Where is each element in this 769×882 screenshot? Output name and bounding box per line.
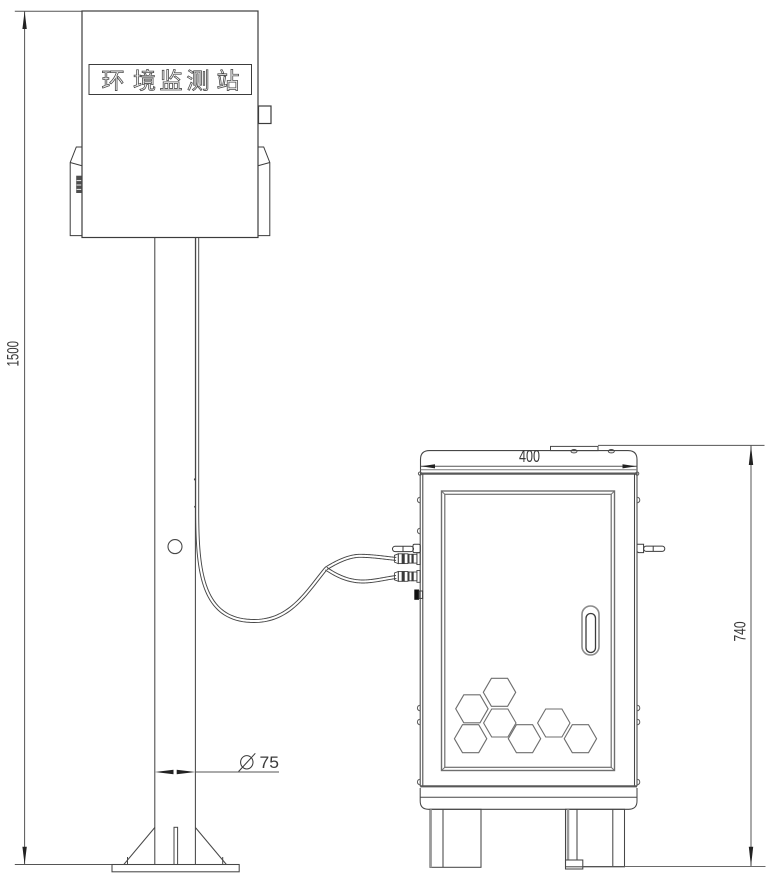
svg-text:1500: 1500 [4, 341, 22, 367]
svg-text:740: 740 [731, 622, 750, 642]
svg-text:75: 75 [260, 754, 280, 772]
svg-text:400: 400 [519, 446, 540, 466]
